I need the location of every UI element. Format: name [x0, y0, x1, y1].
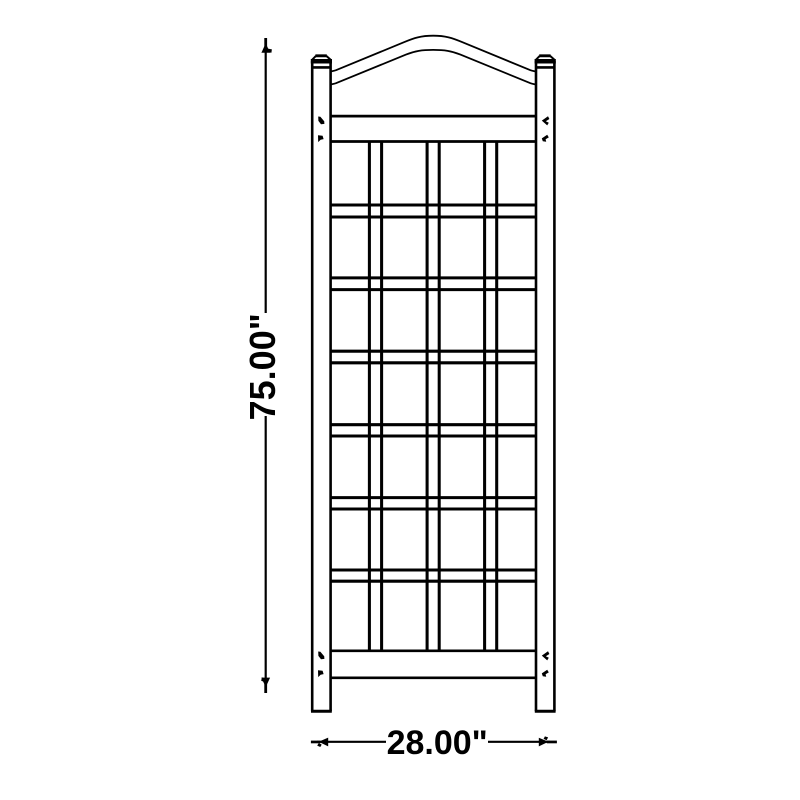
svg-text:75.00": 75.00": [242, 313, 283, 420]
svg-text:28.00": 28.00": [387, 724, 488, 762]
